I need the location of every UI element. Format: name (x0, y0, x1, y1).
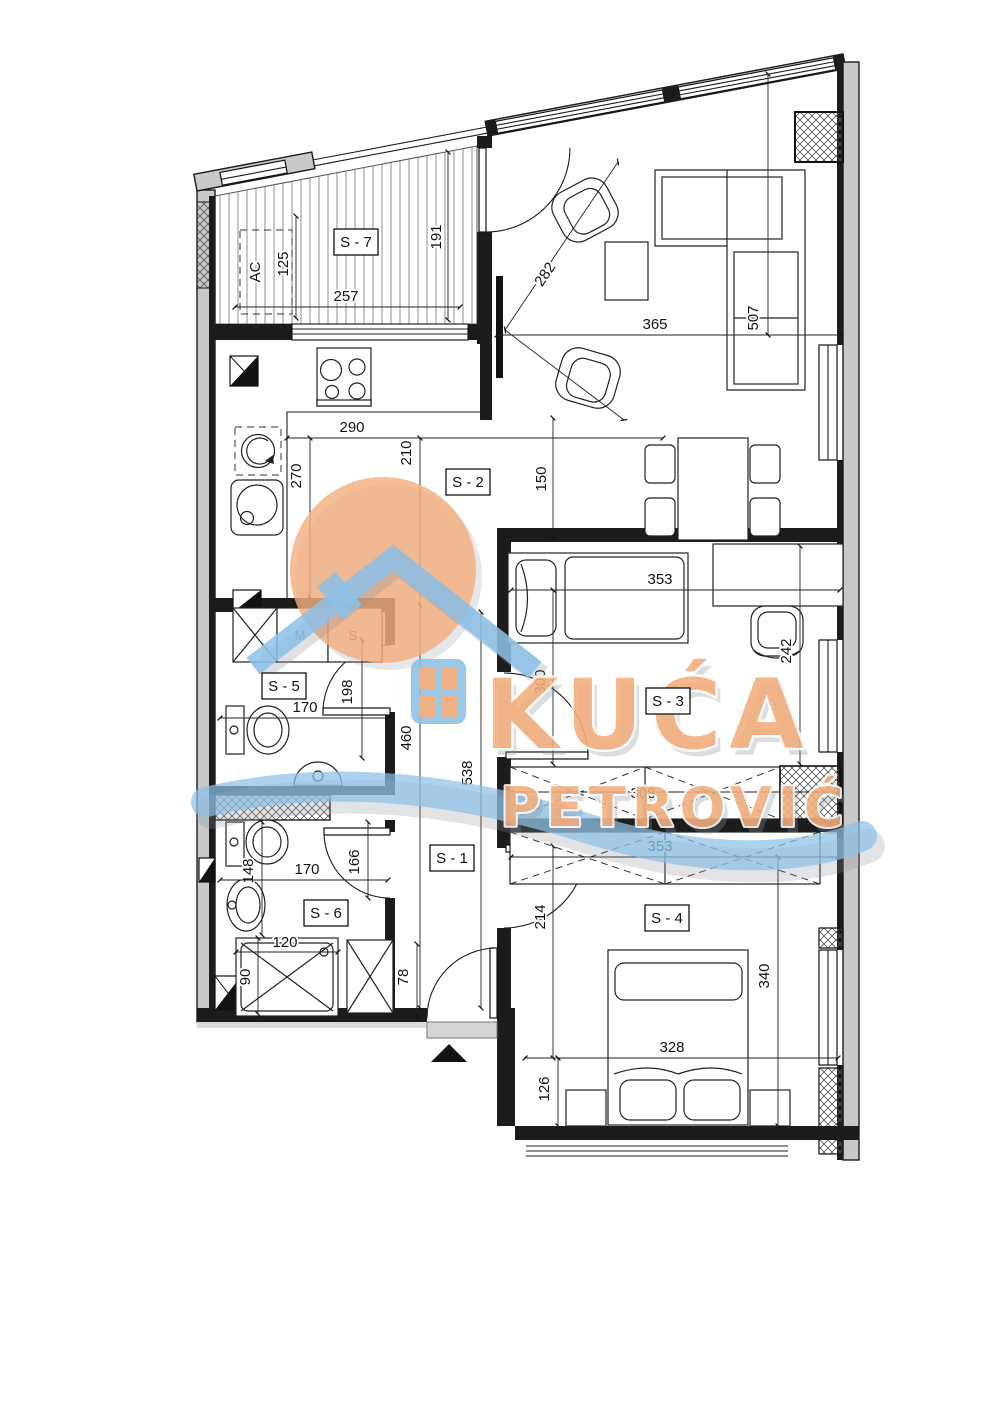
room-label-s5: S - 5 (262, 673, 306, 699)
dim-dining-clear: 150 (533, 418, 553, 538)
dim-s4-width: 328 (525, 1039, 838, 1058)
svg-text:S - 6: S - 6 (310, 905, 342, 922)
svg-text:125: 125 (275, 251, 292, 276)
svg-text:170: 170 (294, 861, 319, 878)
corner-sofa (655, 170, 805, 390)
svg-text:S - 2: S - 2 (452, 474, 484, 491)
floor-plan-page: M S (0, 0, 1000, 1415)
shaft-top-right (795, 112, 843, 162)
room-label-s3: S - 3 (646, 688, 690, 714)
coffee-table (605, 242, 648, 300)
desk-chair (751, 606, 803, 658)
washing-machine-kitchen (235, 427, 281, 475)
entry-side-wall (497, 1008, 515, 1126)
svg-text:78: 78 (395, 969, 412, 986)
wall-marker-1 (230, 356, 258, 386)
right-wall (843, 62, 859, 1160)
sink-s6 (227, 879, 265, 931)
svg-text:S - 5: S - 5 (268, 678, 300, 695)
svg-text:257: 257 (333, 288, 358, 305)
toilet-s6 (226, 820, 288, 866)
brand-bottom: PETROVIĆ (501, 776, 850, 839)
entrance-arrow (431, 1044, 467, 1062)
window-kitchen (292, 324, 468, 340)
room-label-s1: S - 1 (430, 845, 474, 871)
window-right-s3 (819, 640, 837, 752)
room-label-s6: S - 6 (304, 900, 348, 926)
dim-kitchen-width: 290 (287, 419, 663, 438)
svg-text:170: 170 (292, 699, 317, 716)
svg-text:120: 120 (272, 934, 297, 951)
bottom-wall-s4 (515, 1126, 859, 1140)
room-label-s7: S - 7 (334, 229, 378, 255)
svg-text:353: 353 (647, 571, 672, 588)
svg-text:507: 507 (745, 305, 762, 330)
shaft-right-mid (819, 928, 843, 948)
svg-text:126: 126 (536, 1076, 553, 1101)
dim-entry-door: 78 (395, 944, 417, 1016)
room-label-s4: S - 4 (645, 905, 689, 931)
svg-text:290: 290 (339, 419, 364, 436)
desk (713, 544, 843, 606)
svg-text:210: 210 (398, 440, 415, 465)
svg-text:S - 1: S - 1 (436, 850, 468, 867)
tv (496, 276, 503, 378)
svg-text:214: 214 (532, 904, 549, 929)
svg-text:198: 198 (339, 679, 356, 704)
svg-text:S - 7: S - 7 (340, 234, 372, 251)
kitchen-sink (231, 480, 283, 535)
svg-text:191: 191 (428, 224, 445, 249)
window-right-living (819, 345, 837, 460)
svg-text:270: 270 (288, 463, 305, 488)
top-wall (485, 54, 846, 136)
room-label-s2: S - 2 (446, 469, 490, 495)
single-bed (508, 553, 688, 643)
armchair-2 (552, 344, 625, 412)
ac-label: AC (247, 261, 264, 282)
svg-text:150: 150 (533, 466, 550, 491)
svg-text:166: 166 (346, 849, 363, 874)
shower-s1 (347, 940, 393, 1013)
dim-s4-depth: 340 (756, 857, 778, 1126)
toilet-s5 (226, 706, 289, 754)
svg-text:460: 460 (398, 725, 415, 750)
wall-marker-3 (199, 858, 215, 882)
armchair-1 (546, 172, 624, 248)
window-top-2 (678, 58, 835, 99)
window-right-s4 (819, 950, 837, 1065)
svg-text:S - 4: S - 4 (651, 910, 683, 927)
window-top-1 (495, 90, 664, 133)
nightstand-right (750, 1090, 790, 1126)
svg-text:S - 3: S - 3 (652, 693, 684, 710)
svg-text:340: 340 (756, 963, 773, 988)
entrance-door (427, 948, 497, 1062)
svg-text:365: 365 (642, 316, 667, 333)
svg-text:538: 538 (459, 760, 476, 785)
dim-bed-offset: 126 (536, 1058, 558, 1126)
floor-plan-canvas: M S (0, 0, 1000, 1415)
double-bed (608, 950, 748, 1125)
dining-table (645, 438, 780, 540)
logo-window-icon (411, 659, 466, 724)
shaft-right-bottom (819, 1068, 843, 1154)
stove (317, 348, 371, 406)
svg-text:90: 90 (237, 969, 254, 986)
svg-text:328: 328 (659, 1039, 684, 1056)
nightstand-left (566, 1090, 606, 1126)
